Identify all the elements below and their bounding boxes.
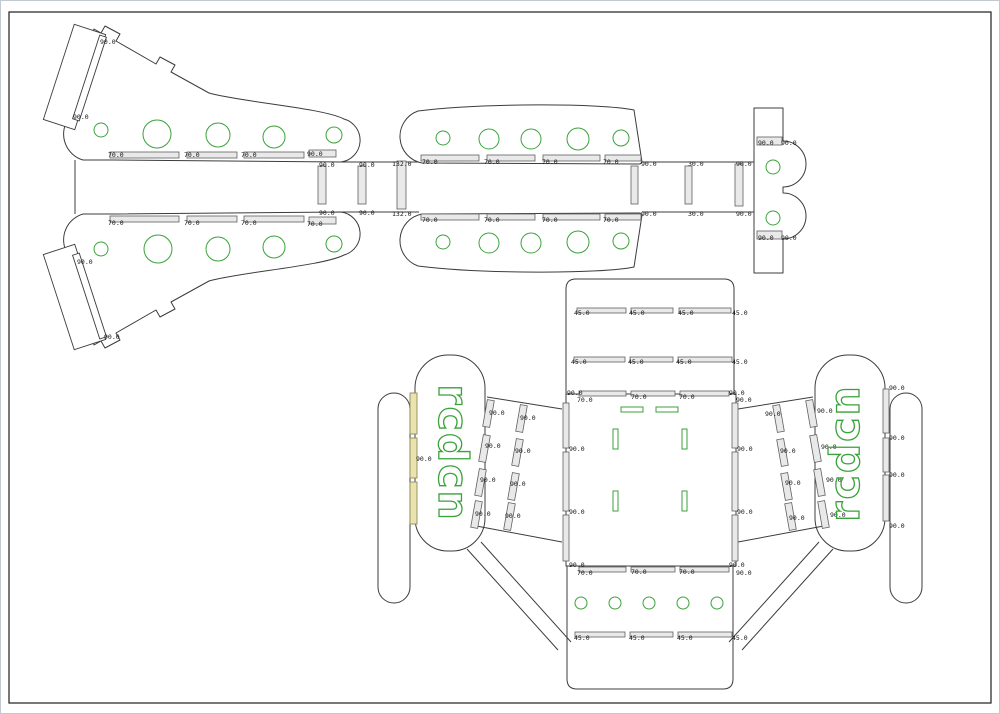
dim-label: 90.0 bbox=[319, 209, 335, 217]
green-slot bbox=[682, 491, 687, 511]
slot bbox=[883, 389, 889, 433]
slot bbox=[732, 515, 738, 561]
dim-label: 90.0 bbox=[520, 414, 536, 422]
dim-label: 70.0 bbox=[241, 219, 257, 227]
dim-label: 70.0 bbox=[422, 216, 438, 224]
dim-label: 90.0 bbox=[319, 161, 335, 169]
dim-label: 45.0 bbox=[678, 309, 694, 317]
slot bbox=[563, 403, 569, 448]
brand-engraving-right: rcdcn bbox=[821, 384, 869, 521]
dim-label: 90.0 bbox=[737, 445, 753, 453]
dim-label: 45.0 bbox=[732, 358, 748, 366]
dim-label: 45.0 bbox=[732, 309, 748, 317]
slot bbox=[631, 166, 638, 204]
dim-label: 70.0 bbox=[484, 158, 500, 166]
hole bbox=[144, 235, 172, 263]
dim-label: 90.0 bbox=[359, 161, 375, 169]
hole bbox=[479, 129, 499, 149]
dim-label: 90.0 bbox=[781, 139, 797, 147]
dim-label: 45.0 bbox=[571, 358, 587, 366]
hole bbox=[766, 211, 780, 225]
dim-label: 132.0 bbox=[392, 160, 412, 168]
dim-label: 90.0 bbox=[77, 258, 93, 266]
dim-label: 90.0 bbox=[758, 234, 774, 242]
slot bbox=[773, 405, 785, 433]
dim-label: 132.0 bbox=[392, 210, 412, 218]
dim-label: 90.0 bbox=[889, 434, 905, 442]
hole bbox=[575, 597, 587, 609]
dim-label: 90.0 bbox=[736, 210, 752, 218]
left-wing-connector bbox=[467, 397, 571, 650]
dim-label: 70.0 bbox=[484, 216, 500, 224]
dim-label: 70.0 bbox=[542, 158, 558, 166]
dim-label: 70.0 bbox=[184, 219, 200, 227]
dim-label: 70.0 bbox=[307, 220, 323, 228]
slot bbox=[563, 515, 569, 561]
slot bbox=[883, 475, 889, 521]
green-slot bbox=[682, 429, 687, 449]
hole bbox=[263, 126, 285, 148]
dim-label: 45.0 bbox=[574, 309, 590, 317]
dim-label: 90.0 bbox=[889, 471, 905, 479]
edge-slots bbox=[43, 24, 889, 637]
app-window: 90.090.070.070.070.090.070.070.070.070.0… bbox=[0, 0, 1000, 714]
dim-label: 90.0 bbox=[489, 409, 505, 417]
green-slot bbox=[613, 491, 618, 511]
dim-label: 90.0 bbox=[569, 445, 585, 453]
slot bbox=[806, 400, 818, 428]
plate-bottom-flap bbox=[567, 566, 733, 689]
hole bbox=[479, 233, 499, 253]
dim-label: 90.0 bbox=[785, 479, 801, 487]
dim-label: 70.0 bbox=[184, 151, 200, 159]
slot bbox=[318, 166, 326, 204]
hole bbox=[613, 130, 629, 146]
dim-label: 90.0 bbox=[505, 512, 521, 520]
dim-label: 70.0 bbox=[631, 568, 647, 576]
right-wing-connector bbox=[729, 397, 833, 650]
dim-label: 90.0 bbox=[510, 480, 526, 488]
dim-label: 90.0 bbox=[485, 442, 501, 450]
leg-arm-bridge-rails bbox=[340, 162, 419, 212]
brand-engraving-left: rcdcn bbox=[429, 384, 477, 521]
dim-label: 90.0 bbox=[789, 514, 805, 522]
dim-label: 45.0 bbox=[629, 309, 645, 317]
slot bbox=[810, 435, 822, 463]
cut-slots-green bbox=[613, 407, 687, 511]
dim-label: 70.0 bbox=[679, 568, 695, 576]
dim-label: 90.0 bbox=[729, 561, 745, 569]
dim-label: 70.0 bbox=[108, 219, 124, 227]
slot bbox=[397, 161, 406, 209]
dim-label: 90.0 bbox=[758, 139, 774, 147]
dim-label: 45.0 bbox=[732, 634, 748, 642]
dim-label: 90.0 bbox=[765, 410, 781, 418]
dim-label: 90.0 bbox=[889, 384, 905, 392]
slot bbox=[563, 452, 569, 511]
hole bbox=[677, 597, 689, 609]
hole bbox=[326, 127, 342, 143]
slot bbox=[358, 166, 366, 204]
green-slot bbox=[621, 407, 643, 412]
dim-label: 90.0 bbox=[515, 447, 531, 455]
dim-label: 70.0 bbox=[577, 569, 593, 577]
dim-label: 90.0 bbox=[736, 396, 752, 404]
dim-label: 70.0 bbox=[542, 216, 558, 224]
hole bbox=[326, 236, 342, 252]
dim-label: 90.0 bbox=[73, 113, 89, 121]
dim-label: 30.0 bbox=[688, 160, 704, 168]
hole bbox=[143, 120, 171, 148]
hole bbox=[436, 131, 450, 145]
hole bbox=[609, 597, 621, 609]
dim-label: 90.0 bbox=[569, 561, 585, 569]
dim-label: 70.0 bbox=[603, 216, 619, 224]
slot bbox=[732, 452, 738, 511]
hole bbox=[206, 123, 230, 147]
hole bbox=[643, 597, 655, 609]
hole bbox=[521, 129, 541, 149]
dim-label: 90.0 bbox=[100, 38, 116, 46]
drawing-sheet-border bbox=[9, 12, 991, 703]
part-outlines bbox=[64, 26, 922, 689]
hole bbox=[567, 128, 589, 150]
dim-label: 90.0 bbox=[359, 209, 375, 217]
green-slot bbox=[656, 407, 678, 412]
dim-label: 45.0 bbox=[676, 358, 692, 366]
dim-label: 70.0 bbox=[422, 158, 438, 166]
dim-label: 90.0 bbox=[889, 522, 905, 530]
dim-label: 90.0 bbox=[480, 476, 496, 484]
hole bbox=[94, 242, 108, 256]
hole bbox=[436, 235, 450, 249]
dim-label: 70.0 bbox=[577, 396, 593, 404]
dim-label: 90.0 bbox=[569, 508, 585, 516]
right-outer-pill bbox=[890, 393, 922, 603]
dim-label: 70.0 bbox=[108, 151, 124, 159]
dim-label: 70.0 bbox=[631, 393, 647, 401]
yellow-slot bbox=[410, 393, 417, 434]
dim-label: 45.0 bbox=[574, 634, 590, 642]
dim-label: 45.0 bbox=[677, 634, 693, 642]
hole bbox=[263, 236, 285, 258]
dim-label: 90.0 bbox=[780, 447, 796, 455]
left-outer-pill bbox=[378, 393, 410, 603]
cad-drawing-canvas: 90.090.070.070.070.090.070.070.070.070.0… bbox=[1, 1, 1000, 714]
dim-label: 90.0 bbox=[736, 160, 752, 168]
dim-label: 70.0 bbox=[241, 151, 257, 159]
yellow-slot bbox=[410, 482, 417, 524]
leg-part-outline-mirrored bbox=[64, 212, 360, 348]
dim-label: 90.0 bbox=[641, 160, 657, 168]
hole bbox=[94, 123, 108, 137]
slot bbox=[883, 438, 889, 472]
green-slot bbox=[613, 429, 618, 449]
slot bbox=[732, 403, 738, 448]
dim-label: 45.0 bbox=[629, 634, 645, 642]
hole bbox=[521, 233, 541, 253]
dim-label: 90.0 bbox=[641, 210, 657, 218]
dim-label: 70.0 bbox=[603, 158, 619, 166]
dim-label: 45.0 bbox=[628, 358, 644, 366]
plate-top-flap bbox=[566, 279, 734, 394]
dim-label: 90.0 bbox=[737, 508, 753, 516]
hole bbox=[613, 233, 629, 249]
dim-label: 90.0 bbox=[307, 150, 323, 158]
dim-label: 90.0 bbox=[104, 333, 120, 341]
dim-label: 30.0 bbox=[688, 210, 704, 218]
dim-label: 90.0 bbox=[736, 569, 752, 577]
plate-body bbox=[566, 394, 736, 566]
leg-part-outline bbox=[64, 26, 360, 162]
slot bbox=[685, 166, 692, 204]
hole bbox=[567, 231, 589, 253]
hole bbox=[766, 160, 780, 174]
dim-label: 70.0 bbox=[679, 393, 695, 401]
bracket-strip-outline bbox=[754, 108, 806, 273]
hole bbox=[711, 597, 723, 609]
dim-label: 90.0 bbox=[781, 234, 797, 242]
hole bbox=[206, 237, 230, 261]
slot bbox=[735, 164, 743, 206]
